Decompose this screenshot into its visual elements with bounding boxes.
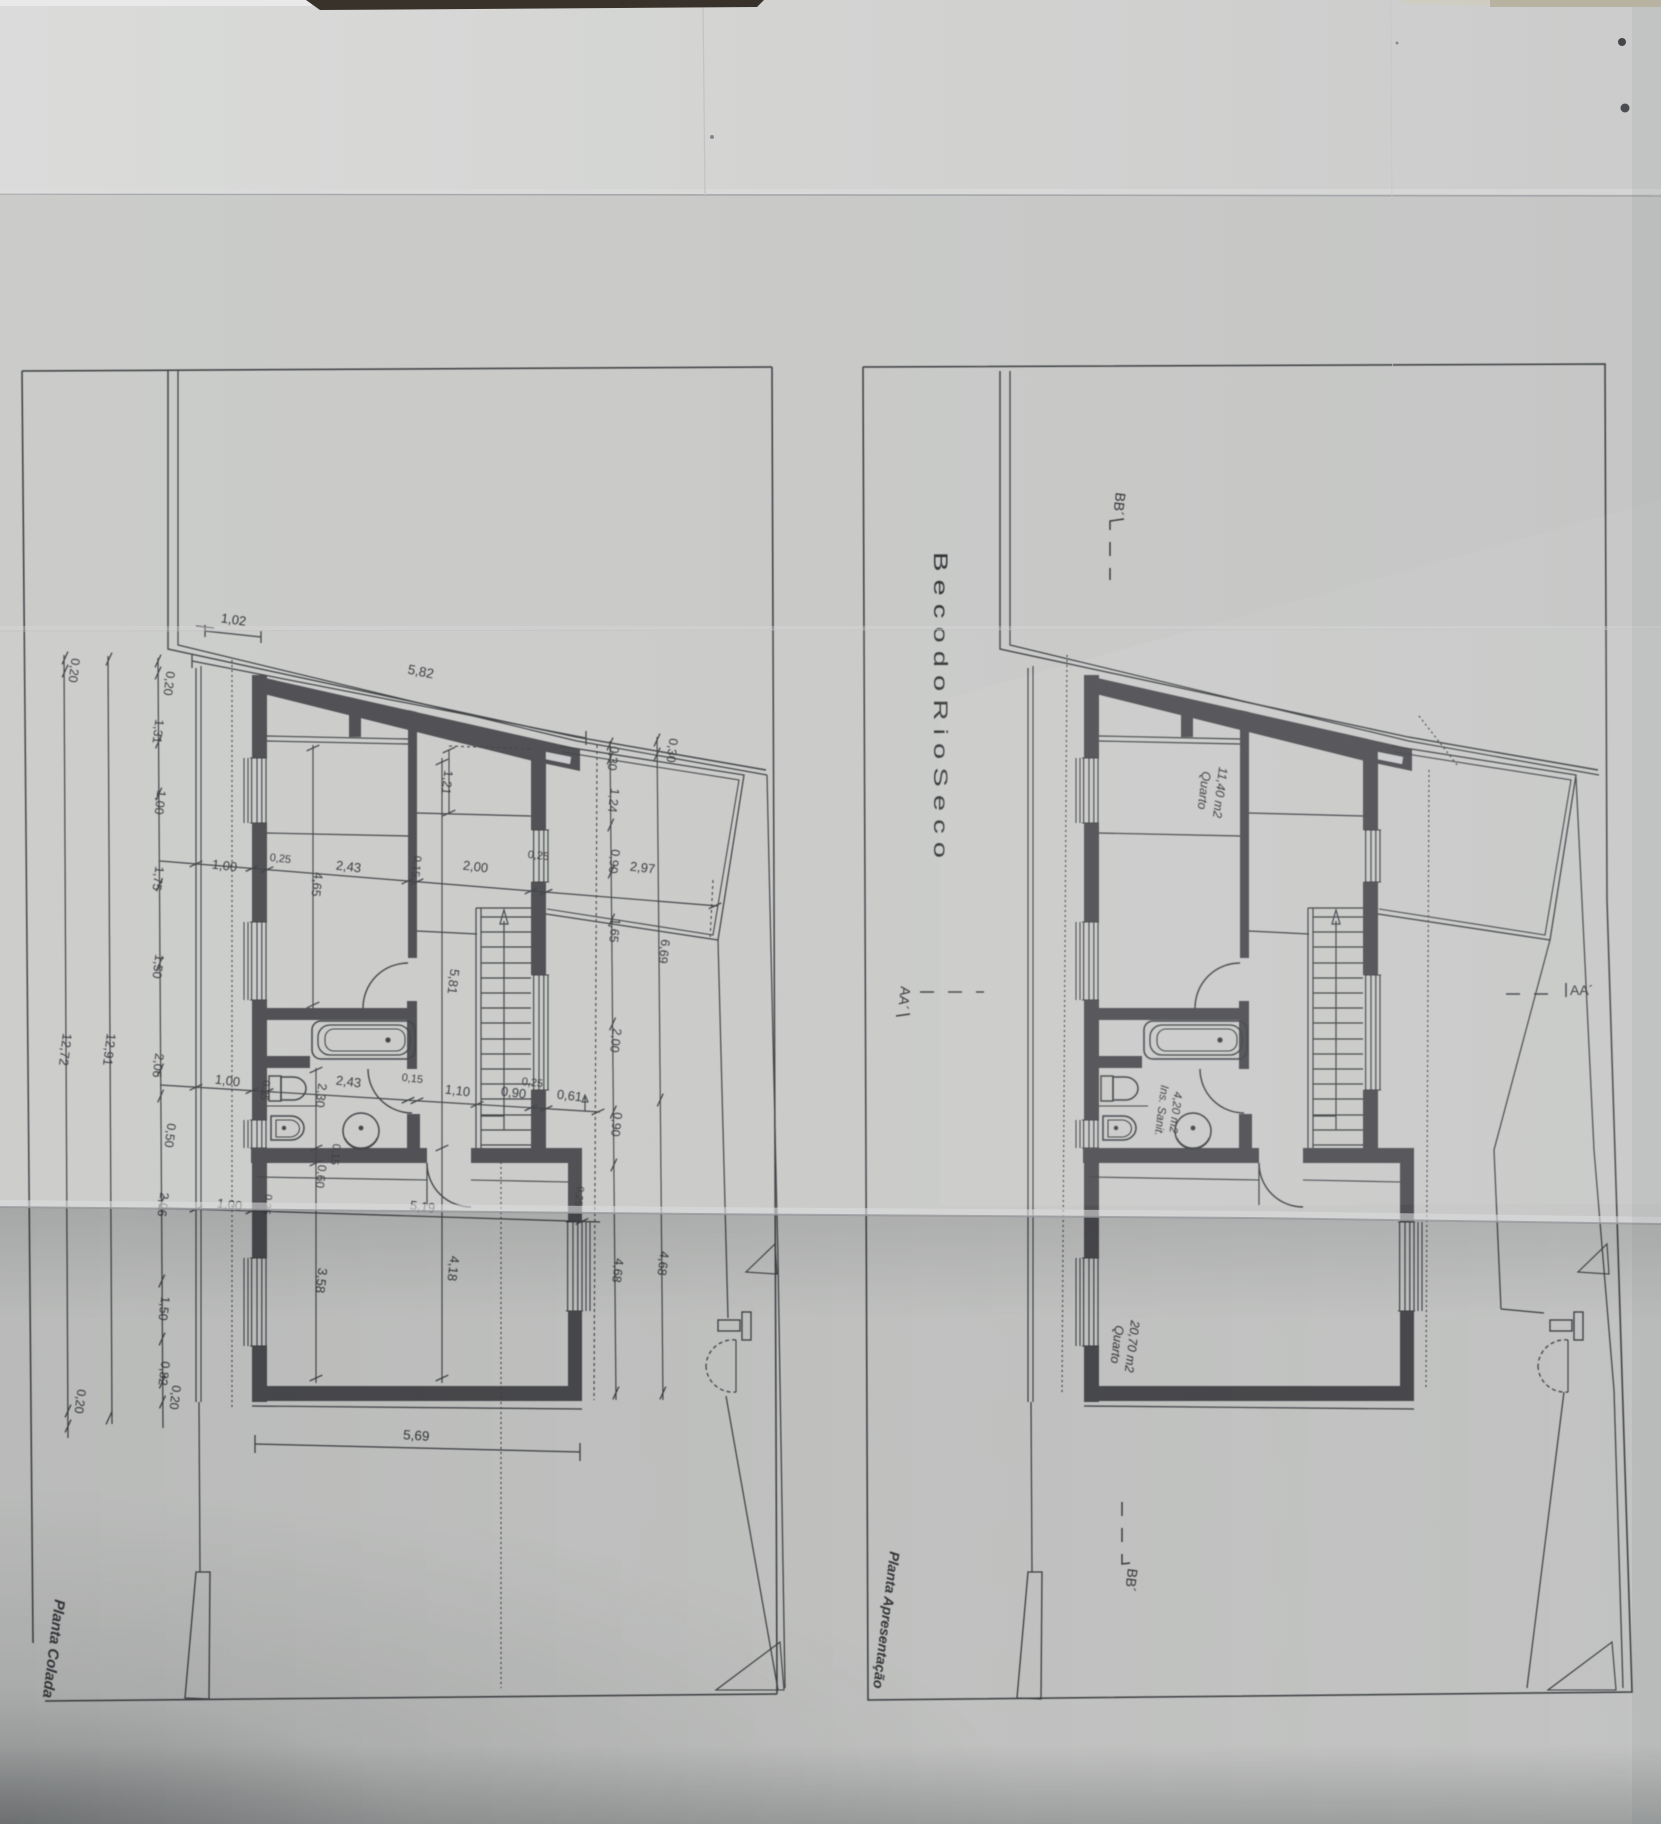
svg-text:BB´: BB´ (1110, 492, 1129, 517)
